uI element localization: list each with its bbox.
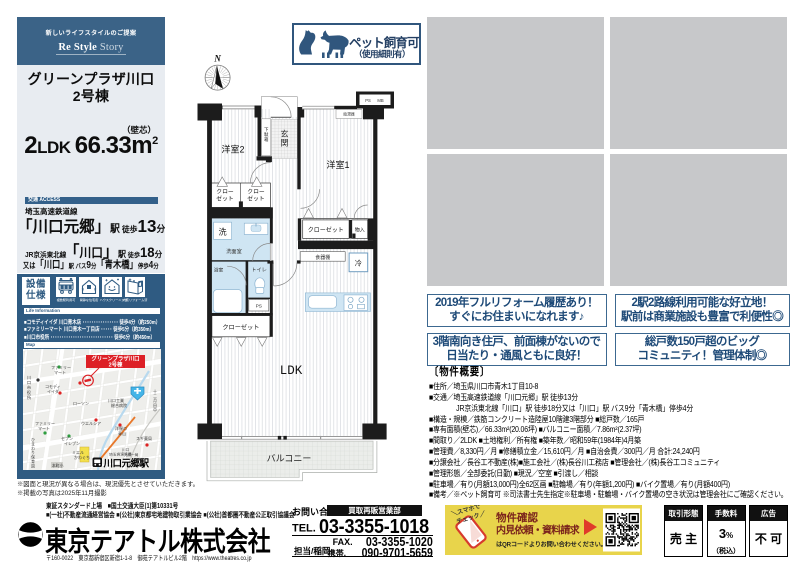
svg-text:関: 関 bbox=[281, 139, 289, 148]
svg-text:洗面室: 洗面室 bbox=[226, 247, 242, 255]
svg-text:LDK: LDK bbox=[280, 364, 303, 378]
svg-text:わ: わ bbox=[31, 446, 35, 451]
svg-text:スギ薬局: スギ薬局 bbox=[136, 435, 152, 441]
svg-text:月: 月 bbox=[153, 398, 157, 403]
svg-text:ゼット: ゼット bbox=[247, 195, 264, 203]
svg-text:物件確認: 物件確認 bbox=[496, 511, 538, 524]
svg-text:二: 二 bbox=[153, 395, 157, 399]
svg-text:グリーンプラザ川口: グリーンプラザ川口 bbox=[91, 355, 139, 363]
svg-text:田: 田 bbox=[153, 404, 157, 408]
svg-text:N: N bbox=[213, 54, 221, 64]
svg-text:イイダ: イイダ bbox=[47, 388, 59, 394]
svg-text:中: 中 bbox=[153, 407, 157, 412]
svg-text:MB: MB bbox=[377, 98, 383, 103]
svg-text:はQRコードよりお問い合わせください。: はQRコードよりお問い合わせください。 bbox=[496, 541, 607, 549]
svg-text:園: 園 bbox=[31, 463, 35, 468]
svg-text:ウエルシア: ウエルシア bbox=[81, 420, 101, 426]
svg-text:所: 所 bbox=[26, 394, 30, 401]
svg-text:PS: PS bbox=[256, 304, 262, 310]
svg-text:クローゼット: クローゼット bbox=[308, 226, 344, 234]
svg-text:内見依頼・資料請求: 内見依頼・資料請求 bbox=[496, 524, 581, 537]
svg-text:青山: 青山 bbox=[118, 430, 126, 436]
svg-text:保: 保 bbox=[31, 455, 35, 460]
svg-text:り: り bbox=[31, 450, 35, 455]
svg-text:川口元郷駅: 川口元郷駅 bbox=[102, 458, 149, 470]
svg-text:玄: 玄 bbox=[281, 129, 289, 139]
svg-text:トイレ: トイレ bbox=[251, 268, 267, 274]
svg-text:クロー: クロー bbox=[247, 189, 265, 196]
svg-text:バルコニー: バルコニー bbox=[267, 454, 312, 464]
svg-text:十: 十 bbox=[153, 389, 157, 394]
svg-text:埼玉高速鉄道: 埼玉高速鉄道 bbox=[108, 451, 131, 457]
svg-text:物入: 物入 bbox=[355, 227, 365, 234]
svg-text:洗: 洗 bbox=[219, 227, 227, 237]
svg-text:ま: ま bbox=[31, 441, 35, 446]
svg-text:育: 育 bbox=[31, 459, 35, 464]
svg-text:クロー: クロー bbox=[216, 189, 234, 196]
svg-text:本町小: 本町小 bbox=[52, 463, 64, 468]
svg-text:PS: PS bbox=[365, 98, 371, 103]
svg-text:クローゼット: クローゼット bbox=[222, 324, 259, 332]
svg-text:ひ: ひ bbox=[31, 437, 35, 442]
svg-text:ゼット: ゼット bbox=[216, 195, 233, 203]
svg-text:ローソン: ローソン bbox=[73, 401, 89, 406]
svg-text:マート: マート bbox=[54, 370, 66, 375]
svg-text:浴室: 浴室 bbox=[214, 267, 224, 274]
svg-text:給湯器: 給湯器 bbox=[343, 112, 355, 117]
svg-text:総合病院: 総合病院 bbox=[111, 402, 127, 408]
svg-text:洋室1: 洋室1 bbox=[326, 159, 349, 170]
svg-text:冷: 冷 bbox=[355, 259, 362, 268]
svg-text:食器棚: 食器棚 bbox=[315, 254, 330, 261]
svg-text:かわぐち: かわぐち bbox=[74, 454, 90, 460]
svg-text:マート: マート bbox=[38, 426, 50, 431]
svg-text:洋室2: 洋室2 bbox=[221, 144, 244, 155]
svg-text:箱: 箱 bbox=[264, 136, 269, 143]
svg-text:イレブン: イレブン bbox=[64, 440, 80, 446]
svg-text:2号棟: 2号棟 bbox=[108, 361, 122, 369]
